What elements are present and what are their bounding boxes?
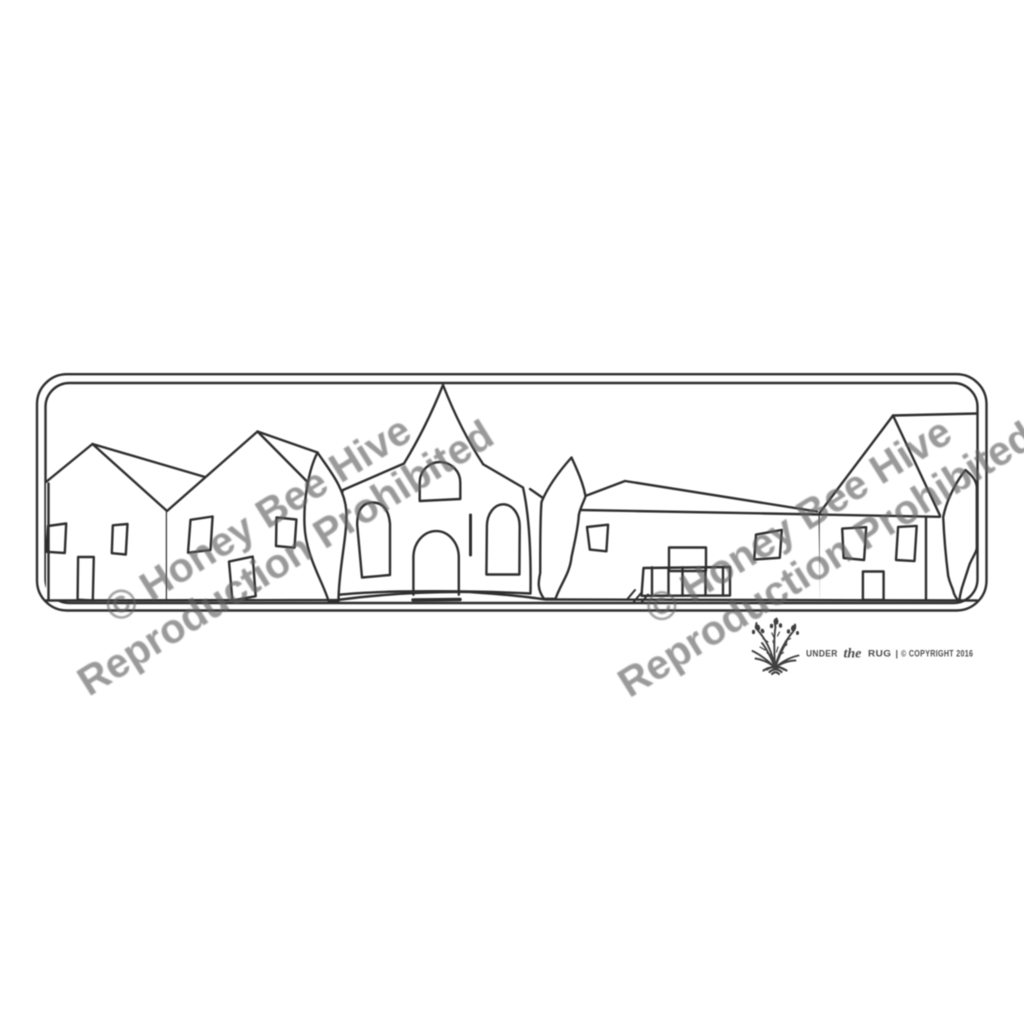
svg-text:RUG: RUG: [868, 649, 891, 659]
svg-text:© COPYRIGHT 2016: © COPYRIGHT 2016: [901, 649, 973, 659]
svg-text:the: the: [844, 647, 862, 662]
svg-text:|: |: [896, 649, 899, 659]
svg-text:UNDER: UNDER: [806, 649, 838, 659]
